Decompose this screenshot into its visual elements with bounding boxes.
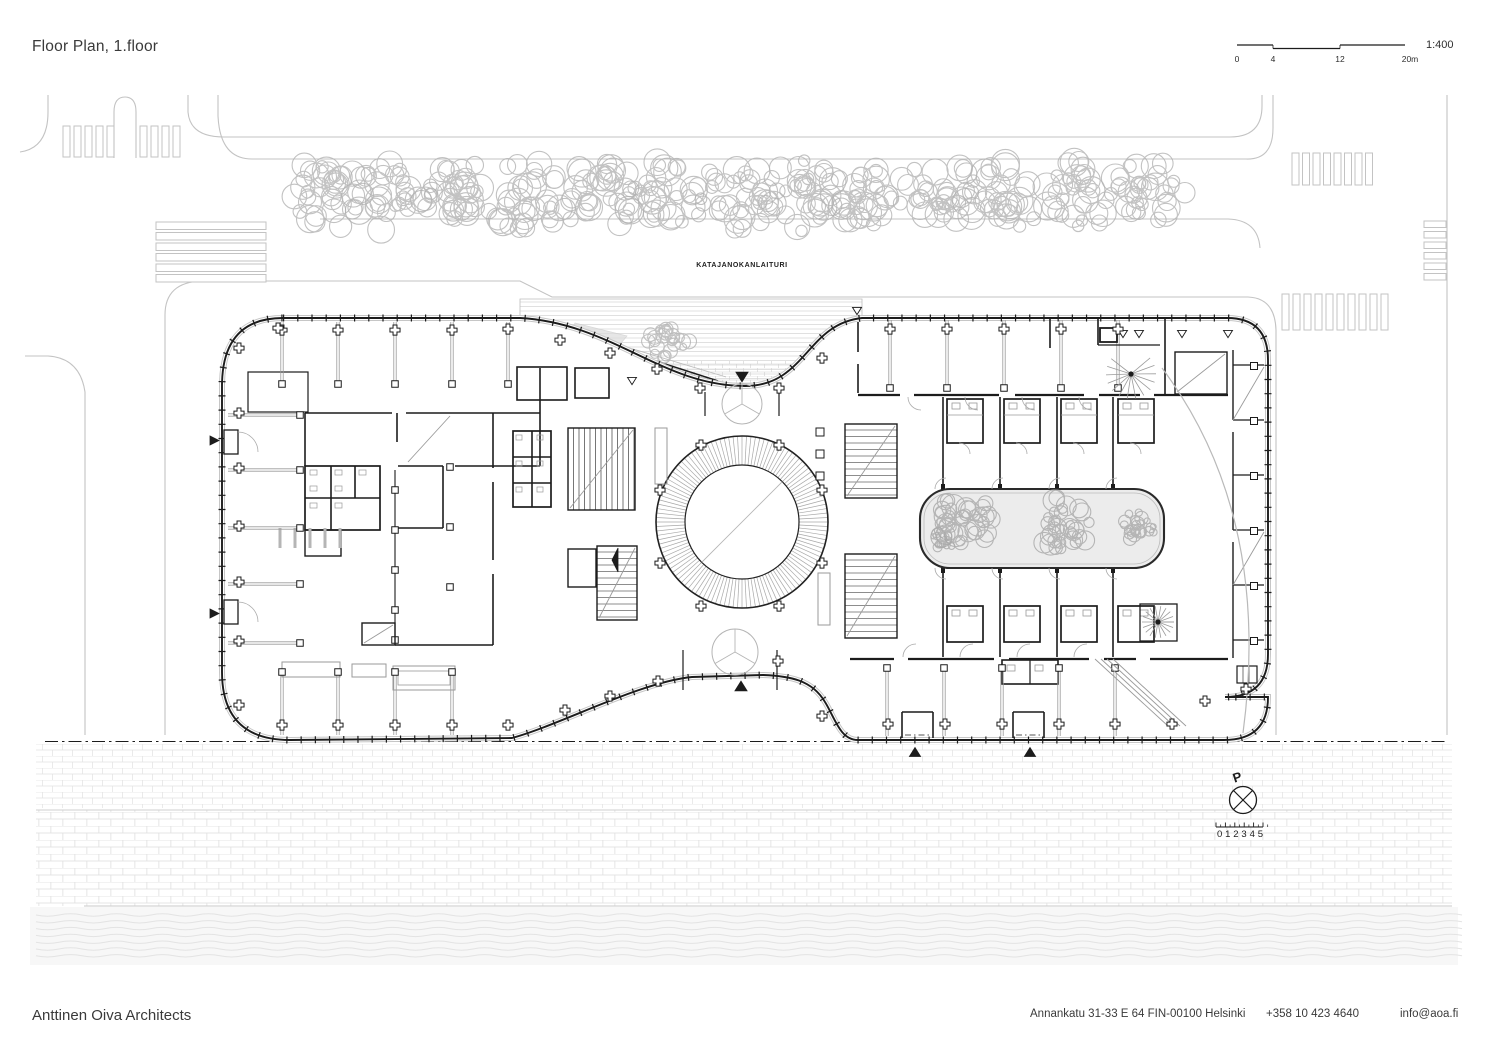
footer-phone: +358 10 423 4640 [1266,1008,1359,1020]
plan-drawing-layer [20,45,1462,965]
page-title: Floor Plan, 1.floor [32,38,158,55]
footer-address: Annankatu 31-33 E 64 FIN-00100 Helsinki [1030,1008,1245,1020]
footer-email: info@aoa.fi [1400,1008,1458,1020]
floor-plan-canvas: Floor Plan, 1.floor 1:400 0 4 12 20m KAT… [0,0,1490,1047]
street-name-label: KATAJANOKANLAITURI [696,262,787,269]
compass-rose [1230,787,1257,814]
scale-tick-4: 4 [1271,54,1276,64]
tree-canopy [615,149,707,230]
tree-canopy [487,151,576,237]
scale-tick-12: 12 [1335,54,1345,64]
floor-plan-sheet: Floor Plan, 1.floor 1:400 0 4 12 20m KAT… [0,0,1490,1047]
tree-canopy [953,149,1042,232]
tree-canopy [561,154,644,235]
scale-tick-20m: 20m [1402,54,1419,64]
compass-ruler-numbers: 0 1 2 3 4 5 [1217,829,1263,840]
scale-ratio-label: 1:400 [1426,39,1454,51]
tree-canopy [342,151,443,243]
firm-name: Anttinen Oiva Architects [32,1007,191,1024]
scale-tick-0: 0 [1235,54,1240,64]
